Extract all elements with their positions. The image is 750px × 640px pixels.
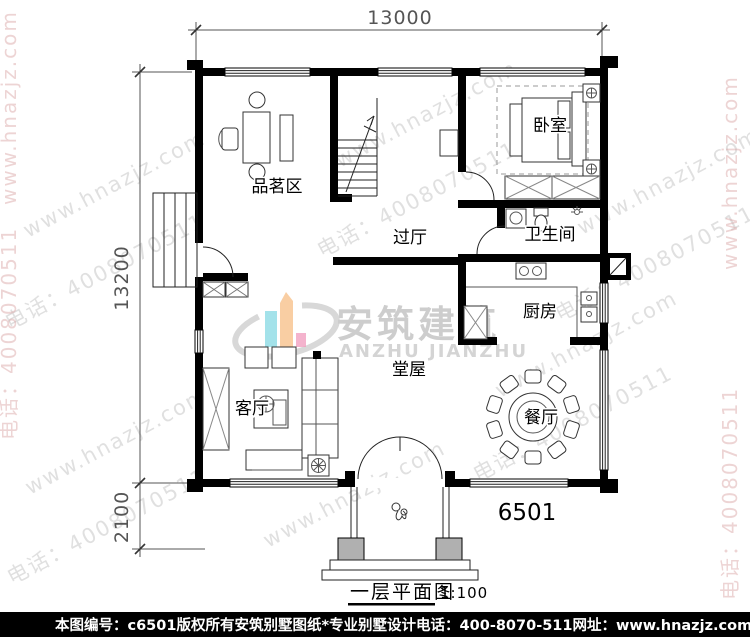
- flue-box: [605, 253, 631, 280]
- window: [378, 68, 452, 76]
- room-label-tea: 品茗区: [252, 177, 303, 197]
- shoe-cabinets: [203, 282, 248, 297]
- footer-phone: 电话：400-8070-511: [416, 614, 572, 635]
- logo-bar-cyan-icon: [265, 311, 277, 347]
- plan-title-block: 一层平面图 1:100: [348, 581, 488, 606]
- window: [195, 330, 203, 353]
- watermark-text: 电话：4008070511: [718, 387, 742, 600]
- plan-scale: 1:100: [440, 584, 488, 602]
- logo-bar-pink-icon: [296, 333, 306, 347]
- main-door-opening: [355, 478, 445, 488]
- side-door-opening: [194, 243, 204, 277]
- hall-cabinet: [440, 130, 458, 156]
- footer-brand: 安筑别墅图纸*专业别墅设计: [234, 614, 416, 635]
- dimension-height-porch-label: 2100: [111, 491, 133, 543]
- dimension-top: 13000: [188, 7, 610, 66]
- room-label-living: 客厅: [235, 399, 269, 419]
- porch-step: [330, 560, 470, 570]
- bench: [246, 450, 302, 470]
- plant-ornament-icon: [392, 503, 407, 520]
- footer-rights: 版权所有: [176, 614, 234, 635]
- floor-plan-canvas: www.hnazjz.com 电话：4008070511 www.hnazjz.…: [0, 0, 750, 612]
- nightstand: [583, 84, 600, 102]
- watermark-text: 电话：4008070511: [0, 227, 21, 440]
- logo-bar-orange-icon: [280, 292, 293, 347]
- kitchen-fixtures: [464, 263, 597, 339]
- kitchen-sink: [581, 292, 597, 322]
- logo-en-text: ANZHU JIANZHU: [339, 341, 528, 362]
- tea-area-furniture: [219, 92, 293, 180]
- dimension-width-label: 13000: [367, 7, 432, 29]
- porch-step: [322, 570, 478, 580]
- window: [600, 350, 608, 470]
- fridge: [464, 306, 487, 339]
- room-label-kitchen: 厨房: [523, 302, 557, 322]
- nightstand: [583, 160, 600, 178]
- window: [600, 283, 608, 323]
- room-label-dining: 餐厅: [524, 408, 558, 428]
- dimension-height-main-label: 13200: [111, 245, 133, 310]
- room-label-hallway: 过厅: [393, 228, 427, 248]
- window: [480, 68, 585, 76]
- window: [225, 68, 310, 76]
- footer-website: 网址：www.hnazjz.com: [572, 614, 750, 635]
- footer-bar: 本图编号：c6501 版权所有 安筑别墅图纸*专业别墅设计 电话：400-807…: [0, 612, 750, 637]
- plan-number: 6501: [498, 500, 557, 526]
- room-label-bedroom: 卧室: [533, 116, 567, 136]
- window: [470, 479, 568, 487]
- tv-cabinet: [203, 368, 229, 450]
- watermark-text: www.hnazjz.com: [0, 10, 21, 205]
- side-entry-door-arc: [203, 247, 233, 277]
- floor-plan-page: www.hnazjz.com 电话：4008070511 www.hnazjz.…: [0, 0, 750, 640]
- room-label-hall: 堂屋: [392, 360, 426, 380]
- footer-doc-number: 本图编号：c6501: [55, 614, 176, 635]
- room-label-bathroom: 卫生间: [525, 225, 576, 245]
- watermark-text: www.hnazjz.com: [718, 75, 742, 270]
- sofa: [302, 351, 338, 458]
- living-room-furniture: [203, 347, 338, 476]
- porch-column: [436, 538, 462, 560]
- wardrobe: [505, 176, 600, 199]
- porch-column: [338, 538, 364, 560]
- window: [230, 479, 338, 487]
- bedroom-furniture: [497, 84, 600, 199]
- bathroom-door-arc: [477, 226, 505, 254]
- floor-plant: [308, 455, 329, 476]
